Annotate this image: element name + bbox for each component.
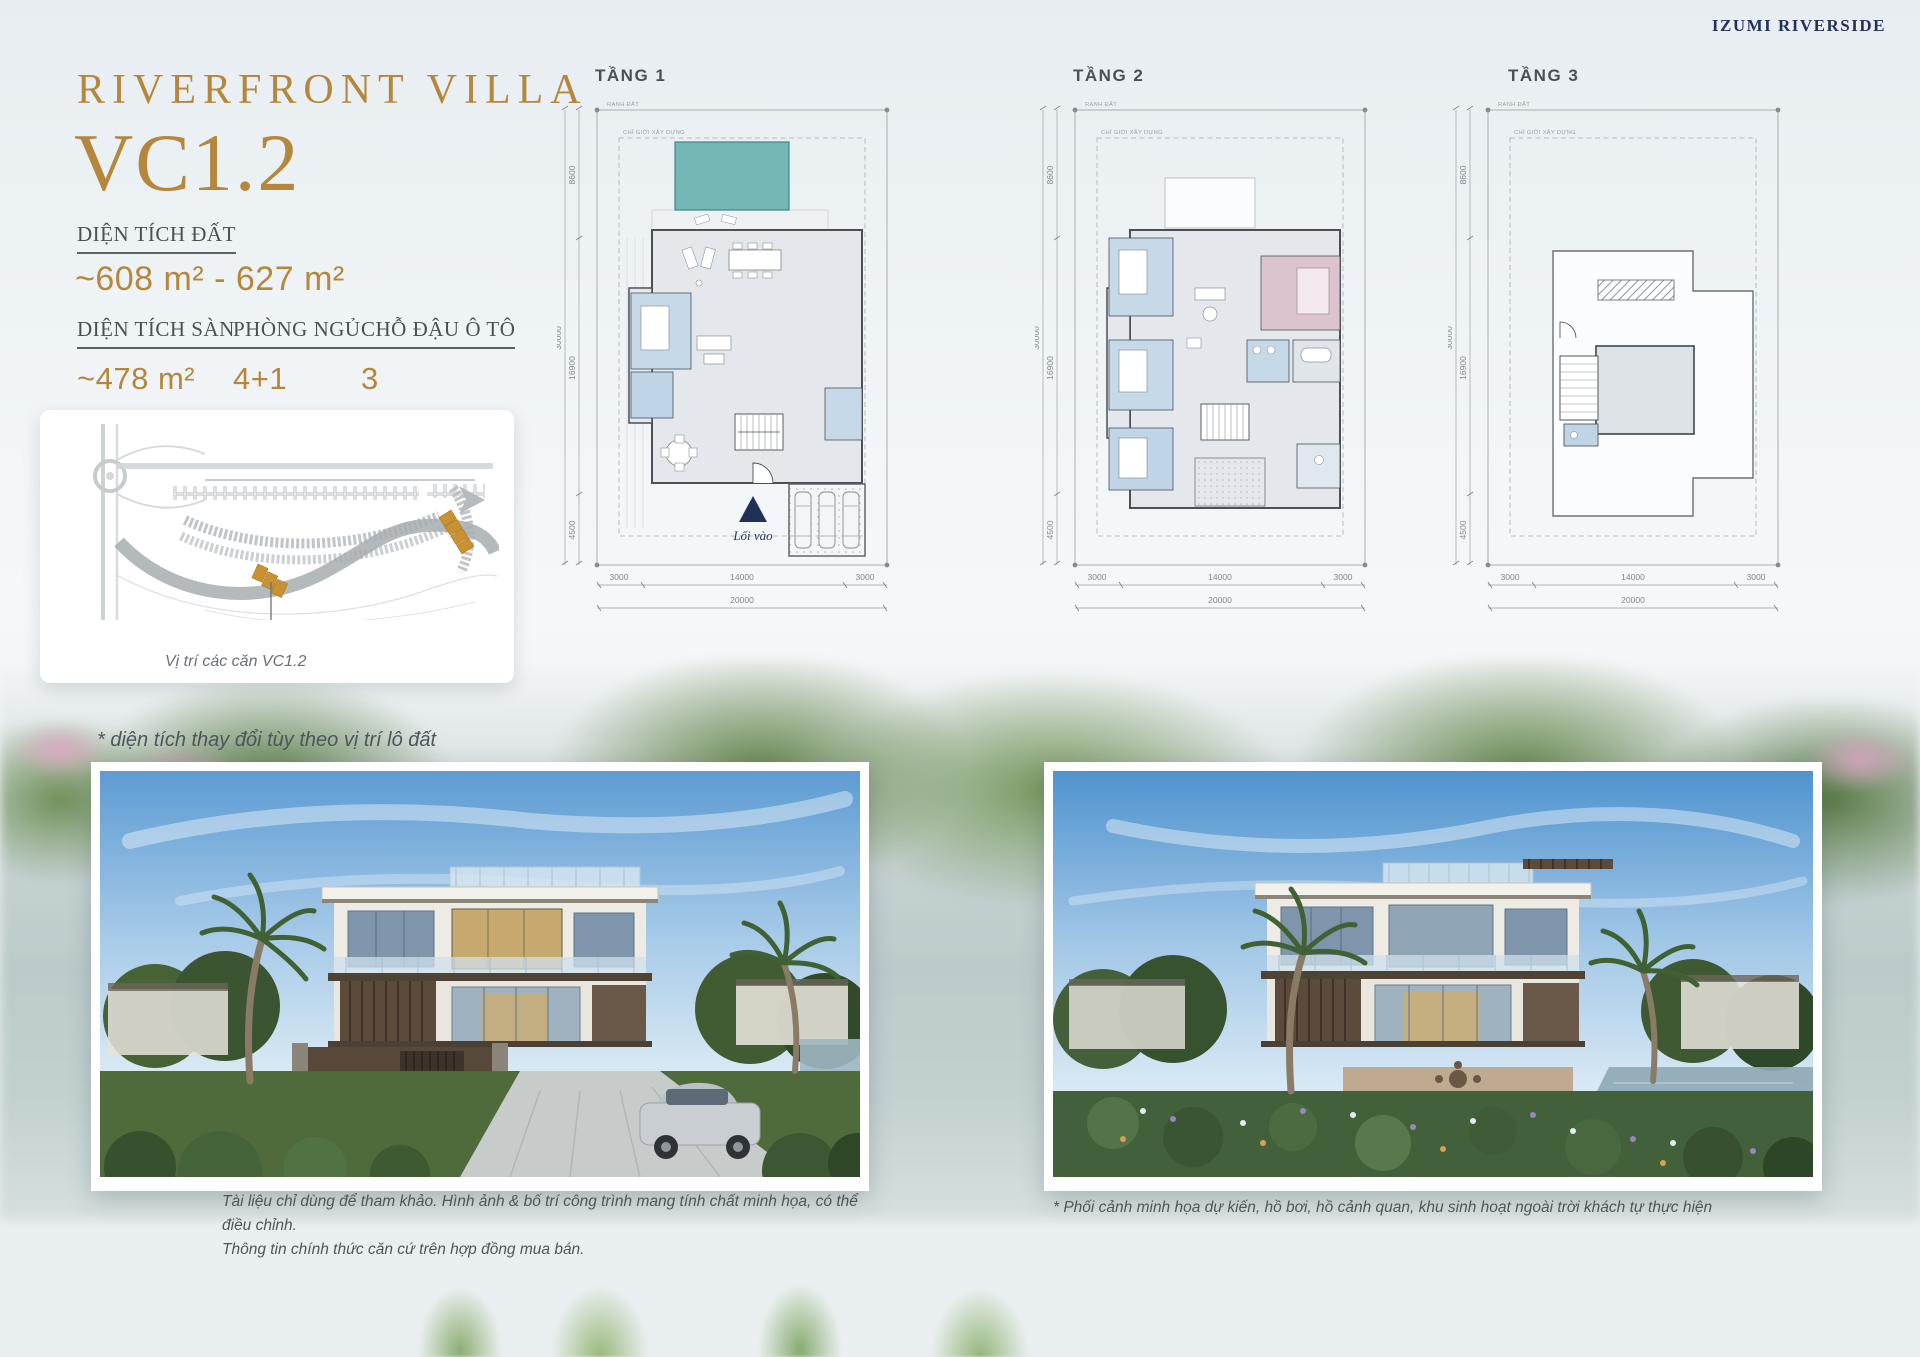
- floor-plan-1-title: TẦNG 1: [595, 66, 909, 86]
- villa-code-title: VC1.2: [74, 116, 300, 210]
- page-title: RIVERFRONT VILLA: [77, 66, 588, 114]
- entry-arrow-icon: [739, 496, 767, 522]
- setback-label: CHỈ GIỚI XÂY DỰNG: [623, 129, 685, 136]
- floor-plan-2-panel: TẦNG 2 RANH ĐẤT CHỈ GIỚI XÂY DỰNG 30000 …: [1035, 66, 1387, 645]
- left-caption-line2: Thông tin chính thức căn cứ trên hợp đồn…: [222, 1241, 585, 1258]
- floor-plan-3-title: TẦNG 3: [1508, 66, 1800, 86]
- svg-text:4500: 4500: [1458, 520, 1468, 539]
- left-caption-line1: Tài liệu chỉ dùng để tham khảo. Hình ảnh…: [222, 1193, 858, 1234]
- entry-label: Lối vào: [732, 528, 773, 543]
- svg-text:16900: 16900: [1458, 356, 1468, 380]
- dim-left-2: 16900: [567, 356, 577, 380]
- dim-bottom-2: 14000: [730, 572, 754, 582]
- right-photo-caption: * Phối cảnh minh họa dự kiến, hồ bơi, hồ…: [1053, 1196, 1793, 1220]
- floor-plan-1-drawing: RANH ĐẤT CHỈ GIỚI XÂY DỰNG 30000 8600 16…: [557, 88, 909, 640]
- boundary-label: RANH ĐẤT: [607, 101, 639, 108]
- dim-left-total: 30000: [557, 326, 563, 350]
- floor-area-value: ~478 m²: [77, 361, 235, 397]
- brand-logo-text: IZUMI RIVERSIDE: [1712, 16, 1886, 36]
- land-area-label: DIỆN TÍCH ĐẤT: [77, 222, 236, 254]
- svg-text:16900: 16900: [1045, 356, 1055, 380]
- site-location-map-card: Vị trí các căn VC1.2: [40, 410, 514, 683]
- dim-left-3: 4500: [567, 520, 577, 539]
- svg-text:4500: 4500: [1045, 520, 1055, 539]
- svg-text:3000: 3000: [1501, 572, 1520, 582]
- svg-text:RANH ĐẤT: RANH ĐẤT: [1085, 101, 1117, 108]
- svg-text:30000: 30000: [1448, 326, 1454, 350]
- villa-render: [322, 867, 658, 1047]
- villa-photo-front: [91, 762, 869, 1191]
- svg-text:CHỈ GIỚI XÂY DỰNG: CHỈ GIỚI XÂY DỰNG: [1514, 129, 1576, 136]
- floor-plan-3-panel: TẦNG 3 RANH ĐẤT CHỈ GIỚI XÂY DỰNG 30000 …: [1448, 66, 1800, 645]
- map-caption: Vị trí các căn VC1.2: [165, 653, 306, 671]
- land-area-value: ~608 m² - 627 m²: [75, 260, 345, 299]
- dim-bottom-3: 3000: [856, 572, 875, 582]
- floor-area-label: DIỆN TÍCH SÀN: [77, 317, 235, 349]
- svg-text:30000: 30000: [1035, 326, 1041, 350]
- bedrooms-value: 4+1: [233, 361, 361, 397]
- floor-plan-2-drawing: RANH ĐẤT CHỈ GIỚI XÂY DỰNG 30000 8600 16…: [1035, 88, 1387, 640]
- floor-plan-3-drawing: RANH ĐẤT CHỈ GIỚI XÂY DỰNG 30000 8600 16…: [1448, 88, 1800, 640]
- villa-photo-garden: [1044, 762, 1822, 1191]
- dim-left-1: 8600: [567, 165, 577, 184]
- svg-text:CHỈ GIỚI XÂY DỰNG: CHỈ GIỚI XÂY DỰNG: [1101, 129, 1163, 136]
- svg-text:RANH ĐẤT: RANH ĐẤT: [1498, 101, 1530, 108]
- svg-text:3000: 3000: [1747, 572, 1766, 582]
- svg-text:8600: 8600: [1458, 165, 1468, 184]
- pool: [675, 142, 789, 210]
- svg-text:14000: 14000: [1208, 572, 1232, 582]
- bedrooms-spec: PHÒNG NGỦ 4+1: [233, 317, 361, 397]
- masterplan-map: [55, 424, 499, 620]
- parking-label: CHỖ ĐẬU Ô TÔ: [361, 317, 515, 349]
- svg-text:3000: 3000: [1088, 572, 1107, 582]
- land-area-label-wrap: DIỆN TÍCH ĐẤT: [77, 222, 236, 254]
- floor-plan-2-title: TẦNG 2: [1073, 66, 1387, 86]
- svg-text:3000: 3000: [1334, 572, 1353, 582]
- svg-text:8600: 8600: [1045, 165, 1055, 184]
- area-note: * diện tích thay đổi tùy theo vị trí lô …: [97, 729, 436, 752]
- svg-text:20000: 20000: [1208, 595, 1232, 605]
- svg-text:14000: 14000: [1621, 572, 1645, 582]
- floor-area-spec: DIỆN TÍCH SÀN ~478 m²: [77, 317, 235, 397]
- bedrooms-label: PHÒNG NGỦ: [233, 317, 361, 349]
- dim-bottom-1: 3000: [610, 572, 629, 582]
- parking-spec: CHỖ ĐẬU Ô TÔ 3: [361, 317, 515, 397]
- floor-plan-1-panel: TẦNG 1 RANH ĐẤT CHỈ GIỚI XÂY DỰNG 30000 …: [557, 66, 909, 645]
- brochure-page: IZUMI RIVERSIDE RIVERFRONT VILLA VC1.2 D…: [0, 0, 1920, 1357]
- svg-text:20000: 20000: [1621, 595, 1645, 605]
- parking-value: 3: [361, 361, 515, 397]
- car-icons: [795, 492, 859, 548]
- left-photo-caption: Tài liệu chỉ dùng để tham khảo. Hình ảnh…: [222, 1190, 882, 1262]
- dim-bottom-total: 20000: [730, 595, 754, 605]
